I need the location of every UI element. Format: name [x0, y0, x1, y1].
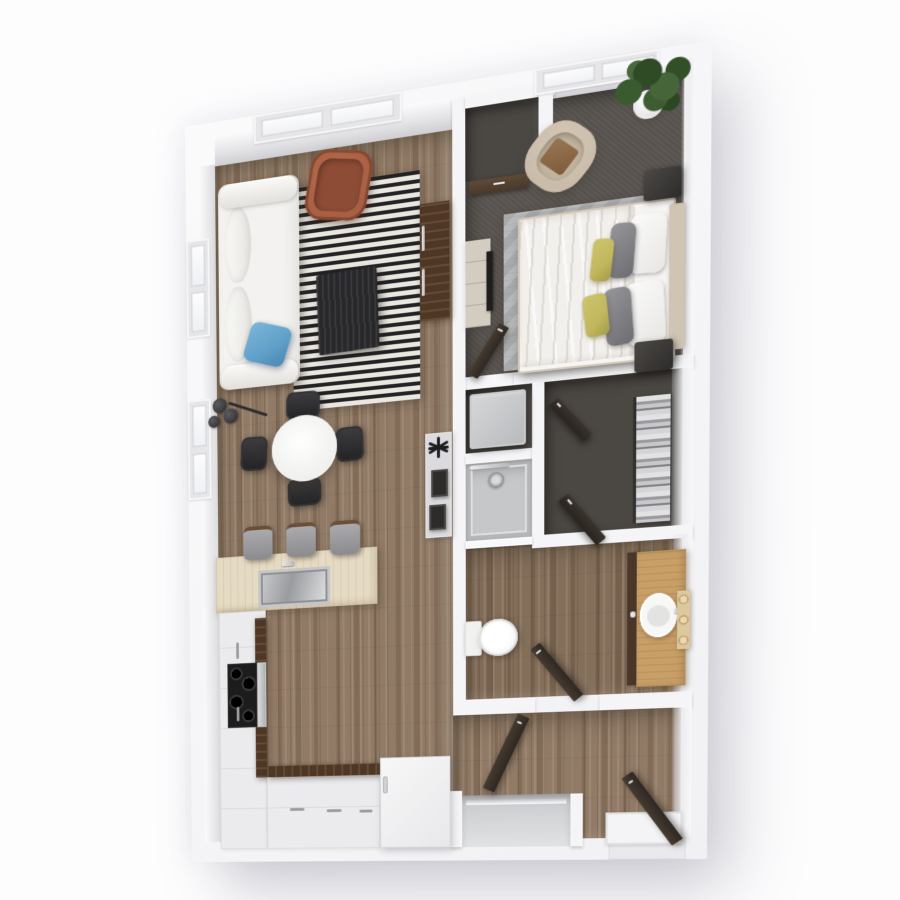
bar-stool-3 [330, 519, 360, 555]
closet-west-wall [532, 382, 544, 548]
bath-south-wall-west [453, 697, 535, 715]
right-wall-face-closet [671, 367, 693, 526]
appliance-handle [383, 776, 388, 793]
floor-plan [185, 40, 712, 862]
headboard [669, 202, 685, 350]
island-faucet [282, 561, 295, 567]
entry-closet-right-wall [570, 793, 582, 846]
console-handle-2 [422, 269, 425, 297]
shower-pan [466, 459, 532, 542]
dresser-tv [486, 251, 492, 311]
dining-chair-east [335, 425, 364, 463]
cabinet-handle-2 [237, 707, 240, 722]
side-window-lower-pane-1 [192, 404, 207, 447]
towel-peg-board [677, 590, 690, 649]
range-front [257, 662, 267, 727]
divider-wall [452, 96, 466, 716]
bar-stool-1 [243, 525, 272, 561]
range-cooktop [227, 663, 257, 728]
washer-dryer [470, 389, 526, 449]
nightstand-north [644, 165, 682, 201]
cabinet-handle-3 [290, 808, 305, 811]
side-window-upper-pane-2 [191, 291, 206, 333]
coffee-table [316, 266, 380, 356]
photo-frame-2 [429, 504, 446, 530]
bar-stool-2 [286, 522, 316, 558]
appliance-cabinet [380, 756, 451, 848]
dining-chair-west [240, 436, 268, 471]
cabinet-handle-5 [359, 810, 372, 813]
pillow-olive-2 [582, 292, 611, 339]
island-sink [258, 566, 330, 608]
cabinet-handle-4 [327, 809, 342, 812]
photo-frame-1 [431, 469, 448, 498]
media-console [420, 200, 450, 322]
nightstand-south [634, 338, 673, 373]
floor-plan-stage [0, 0, 900, 900]
entry-closet-left-wall [450, 791, 462, 847]
hanging-clothes [636, 394, 671, 523]
plant-foliage [611, 45, 693, 124]
console-handle-1 [422, 225, 425, 251]
cabinet-handle-1 [236, 642, 239, 659]
side-window-lower-pane-2 [193, 453, 208, 495]
side-window-upper-pane-1 [191, 244, 206, 287]
